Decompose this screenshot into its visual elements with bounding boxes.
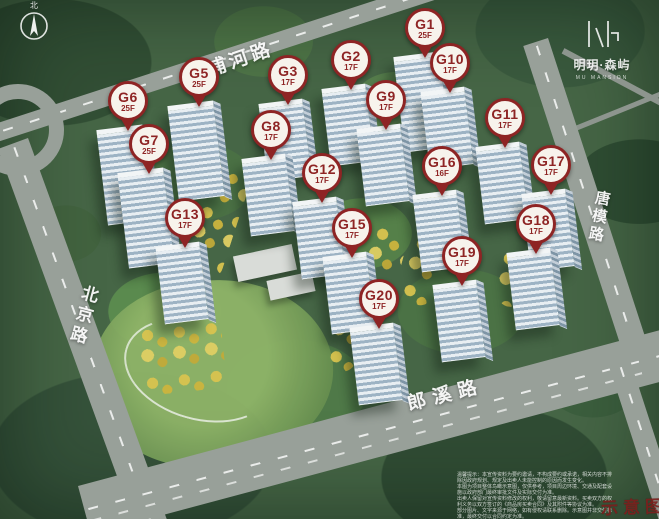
- pin-tail-icon: [178, 236, 192, 248]
- building-id-label: G2: [341, 49, 361, 63]
- pin-tail-icon: [372, 317, 386, 329]
- building-pin-g17[interactable]: G1717F: [531, 145, 571, 195]
- building-id-label: G13: [171, 207, 199, 221]
- building-floors-label: 17F: [379, 104, 393, 112]
- building-floors-label: 17F: [544, 169, 558, 177]
- pin-tail-icon: [443, 81, 457, 93]
- building-id-label: G3: [278, 64, 298, 78]
- compass-north-label: 北: [16, 2, 52, 10]
- pin-tail-icon: [315, 191, 329, 203]
- building-pin-g8[interactable]: G817F: [251, 110, 291, 160]
- pin-tail-icon: [529, 242, 543, 254]
- site-plan: 秋浦河路 北京路 郎溪路 唐模路 北 明玥·森屿 MU MANSION 温馨提示…: [0, 0, 659, 519]
- building-id-label: G11: [491, 107, 518, 121]
- building-floors-label: 17F: [372, 303, 386, 311]
- compass-icon: [18, 10, 50, 42]
- building-pin-g18[interactable]: G1817F: [516, 204, 556, 254]
- pin-circle: G1117F: [485, 98, 525, 138]
- disclaimer-line: 温馨提示：本宣传资料为要约邀请，不构成要约或承诺，相关内容不排除因政府规划、规定…: [457, 472, 613, 484]
- building-id-label: G18: [522, 213, 550, 227]
- pin-circle: G1317F: [165, 198, 205, 238]
- brand-logo: 明玥·森屿 MU MANSION: [559, 20, 645, 81]
- pin-tail-icon: [544, 183, 558, 195]
- building-id-label: G7: [139, 133, 159, 147]
- pin-circle: G317F: [268, 55, 308, 95]
- building-pin-g16[interactable]: G1616F: [422, 146, 462, 196]
- building-floors-label: 17F: [281, 79, 295, 87]
- building-floors-label: 17F: [345, 232, 359, 240]
- pin-tail-icon: [344, 78, 358, 90]
- pin-circle: G125F: [405, 8, 445, 48]
- pin-circle: G1217F: [302, 153, 342, 193]
- roundabout: [0, 84, 64, 176]
- building-floors-label: 17F: [178, 222, 192, 230]
- tower-g13: [155, 242, 208, 325]
- building-id-label: G15: [338, 217, 366, 231]
- brand-subtitle: MU MANSION: [559, 75, 645, 81]
- tower-g5: [167, 101, 224, 202]
- building-id-label: G9: [376, 89, 396, 103]
- pin-circle: G1717F: [531, 145, 571, 185]
- disclaimer-line: 部分图片、文字来源于网络，如有侵权请联系删除。示意图并非交付标准，最终交付以合同…: [457, 508, 613, 519]
- pin-circle: G917F: [366, 80, 406, 120]
- pin-tail-icon: [142, 162, 156, 174]
- building-floors-label: 17F: [443, 67, 457, 75]
- pin-circle: G1917F: [442, 236, 482, 276]
- building-floors-label: 25F: [142, 148, 156, 156]
- building-floors-label: 17F: [315, 177, 329, 185]
- building-id-label: G12: [308, 162, 336, 176]
- pin-tail-icon: [498, 136, 512, 148]
- pin-circle: G625F: [108, 81, 148, 121]
- building-floors-label: 17F: [264, 134, 278, 142]
- disclaimer-line: 出卖人保留对宣传资料修改的权利，敬请留意最新资料。买卖双方的权利义务以双方签订的…: [457, 496, 613, 508]
- building-pin-g20[interactable]: G2017F: [359, 279, 399, 329]
- building-id-label: G17: [537, 154, 565, 168]
- pin-circle: G725F: [129, 124, 169, 164]
- pin-tail-icon: [379, 118, 393, 130]
- building-pin-g5[interactable]: G525F: [179, 57, 219, 107]
- pin-circle: G1616F: [422, 146, 462, 186]
- building-pin-g9[interactable]: G917F: [366, 80, 406, 130]
- building-id-label: G1: [415, 17, 435, 31]
- building-pin-g11[interactable]: G1117F: [485, 98, 525, 148]
- building-id-label: G10: [436, 52, 464, 66]
- building-pin-g19[interactable]: G1917F: [442, 236, 482, 286]
- pin-tail-icon: [192, 95, 206, 107]
- building-id-label: G16: [428, 155, 456, 169]
- tower-g20: [349, 323, 402, 406]
- pin-tail-icon: [264, 148, 278, 160]
- disclaimer: 温馨提示：本宣传资料为要约邀请，不构成要约或承诺，相关内容不排除因政府规划、规定…: [457, 472, 613, 519]
- building-floors-label: 25F: [121, 105, 135, 113]
- pin-circle: G817F: [251, 110, 291, 150]
- pin-circle: G1817F: [516, 204, 556, 244]
- tower-g18: [506, 248, 559, 331]
- building-floors-label: 17F: [455, 260, 469, 268]
- building-pin-g13[interactable]: G1317F: [165, 198, 205, 248]
- pin-tail-icon: [455, 274, 469, 286]
- building-floors-label: 25F: [192, 81, 206, 89]
- pin-circle: G1517F: [332, 208, 372, 248]
- building-pin-g12[interactable]: G1217F: [302, 153, 342, 203]
- brand-logo-mark-icon: [584, 20, 620, 48]
- pin-tail-icon: [345, 246, 359, 258]
- pin-circle: G525F: [179, 57, 219, 97]
- pin-tail-icon: [281, 93, 295, 105]
- building-pin-g15[interactable]: G1517F: [332, 208, 372, 258]
- building-floors-label: 17F: [529, 228, 543, 236]
- tree-grove: [137, 318, 228, 396]
- building-id-label: G6: [118, 90, 138, 104]
- building-pin-g10[interactable]: G1017F: [430, 43, 470, 93]
- building-pin-g2[interactable]: G217F: [331, 40, 371, 90]
- pin-circle: G1017F: [430, 43, 470, 83]
- building-id-label: G5: [189, 66, 209, 80]
- brand-name: 明玥·森屿: [559, 56, 645, 73]
- building-floors-label: 17F: [344, 64, 358, 72]
- building-id-label: G19: [448, 245, 476, 259]
- building-pin-g7[interactable]: G725F: [129, 124, 169, 174]
- building-id-label: G20: [365, 288, 393, 302]
- tower-g8: [241, 154, 294, 237]
- pin-circle: G2017F: [359, 279, 399, 319]
- building-pin-g3[interactable]: G317F: [268, 55, 308, 105]
- building-floors-label: 16F: [435, 170, 449, 178]
- tower-g19: [432, 280, 485, 363]
- pin-circle: G217F: [331, 40, 371, 80]
- stamp-shiyitu: 示意图: [601, 492, 659, 519]
- pin-tail-icon: [435, 184, 449, 196]
- building-id-label: G8: [261, 119, 281, 133]
- building-floors-label: 25F: [418, 32, 432, 40]
- compass: 北: [16, 2, 52, 47]
- building-floors-label: 17F: [498, 122, 512, 130]
- tower-g9: [356, 124, 409, 207]
- disclaimer-line: 本图为项目整体鸟瞰示意图，仅供参考，项目周边环境、交通及配套设施以政府部门最终审…: [457, 484, 613, 496]
